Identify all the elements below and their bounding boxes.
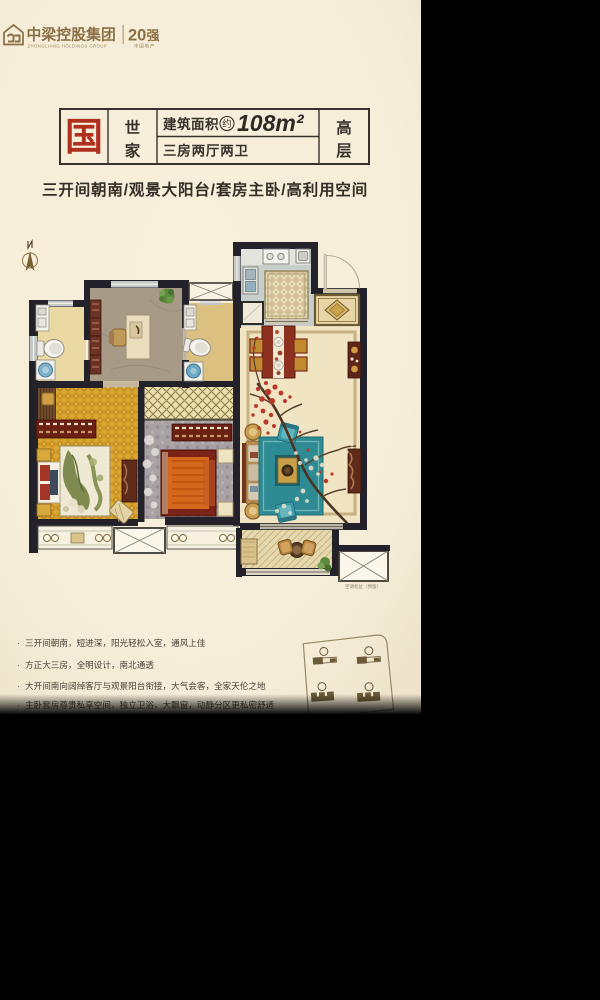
- svg-text:·: ·: [17, 638, 20, 648]
- svg-text:国: 国: [65, 117, 103, 159]
- svg-text:中国地产: 中国地产: [134, 43, 155, 50]
- svg-text:方正大三房，全明设计，南北通透: 方正大三房，全明设计，南北通透: [25, 659, 154, 670]
- svg-text:108m²: 108m²: [237, 110, 305, 136]
- svg-text:大开间南向阔绰客厅与观景阳台衔接，大气会客，全家天伦之地: 大开间南向阔绰客厅与观景阳台衔接，大气会客，全家天伦之地: [25, 680, 266, 691]
- svg-text:三房两厅两卫: 三房两厅两卫: [163, 143, 249, 159]
- svg-text:约: 约: [222, 118, 232, 130]
- svg-text:世: 世: [125, 119, 141, 137]
- svg-text:空调机位（预留）: 空调机位（预留）: [345, 583, 381, 590]
- svg-text:三开间朝南/观景大阳台/套房主卧/高利用空间: 三开间朝南/观景大阳台/套房主卧/高利用空间: [42, 180, 368, 199]
- svg-text:家: 家: [125, 141, 141, 160]
- svg-text:强: 强: [147, 28, 160, 43]
- svg-text:建筑面积: 建筑面积: [162, 116, 219, 132]
- svg-text:中梁控股集团: 中梁控股集团: [27, 26, 116, 44]
- svg-text:·: ·: [17, 681, 20, 691]
- svg-text:层: 层: [336, 142, 352, 160]
- svg-text:20: 20: [128, 27, 146, 45]
- svg-text:ZHONGLIANG HOLDINGS GROUP: ZHONGLIANG HOLDINGS GROUP: [28, 44, 108, 49]
- svg-text:高: 高: [336, 118, 352, 137]
- svg-text:·: ·: [17, 660, 20, 670]
- svg-text:三开间朝南，短进深，阳光轻松入室，通风上佳: 三开间朝南，短进深，阳光轻松入室，通风上佳: [25, 637, 206, 648]
